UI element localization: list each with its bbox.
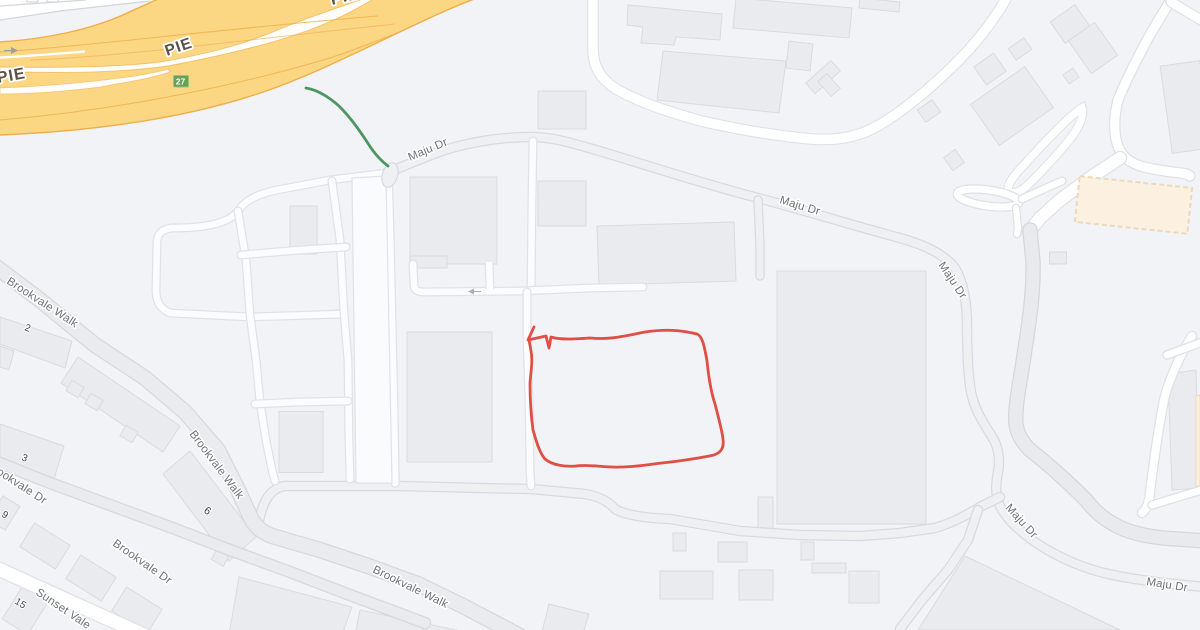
- svg-text:27: 27: [176, 77, 186, 87]
